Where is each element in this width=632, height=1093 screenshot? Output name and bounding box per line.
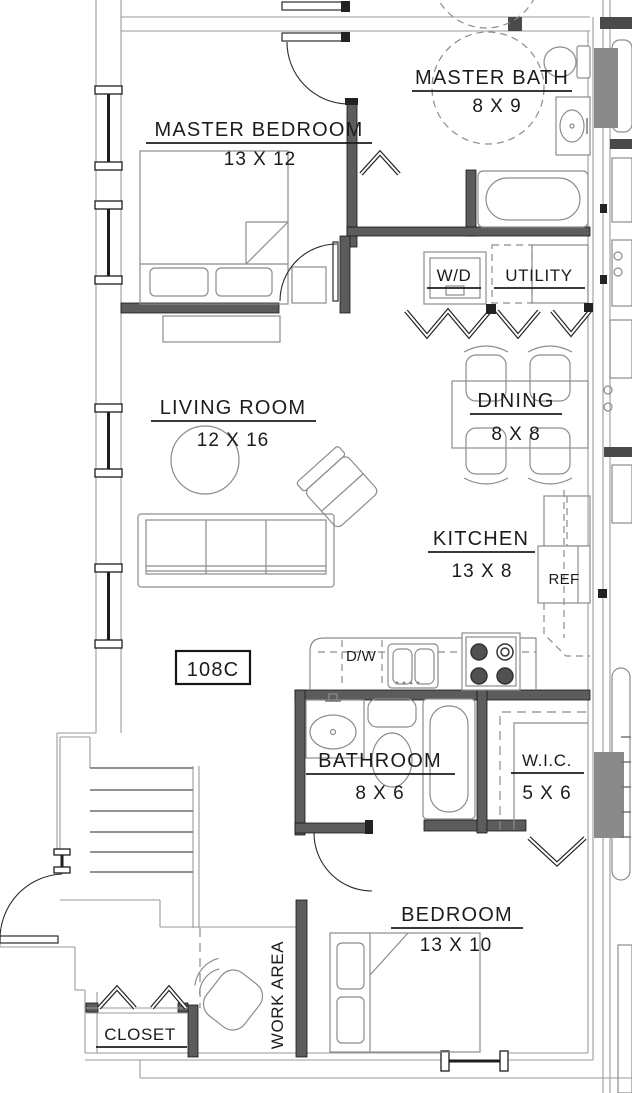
wall-block [594, 48, 618, 128]
turning-circle [432, 0, 540, 28]
doors [0, 1, 593, 1008]
door-leaf [333, 242, 338, 301]
room-label-closet: CLOSET [104, 1025, 176, 1044]
room-label-kitchen: KITCHEN [433, 528, 529, 550]
bifold-door-icon [552, 303, 593, 334]
window-icon [93, 404, 124, 477]
stove-icon [462, 633, 520, 690]
room-dims-dining: 8 X 8 [491, 424, 540, 445]
room-label-utility: UTILITY [505, 266, 573, 285]
room-dims-kitchen: 13 X 8 [452, 561, 513, 582]
room-label-dining: DINING [477, 390, 554, 412]
label-refrigerator: REF [549, 571, 580, 588]
room-label-master-bedroom: MASTER BEDROOM [154, 119, 363, 141]
living-room-furniture [138, 316, 379, 587]
bathtub-icon [478, 171, 588, 227]
master-bedroom-furniture [140, 151, 326, 304]
bifold-door-icon [152, 988, 186, 1008]
bifold-door-icon [99, 988, 135, 1008]
room-dims-master-bedroom: 13 X 12 [224, 149, 297, 170]
dining-furniture [452, 346, 588, 484]
nightstand-icon [292, 267, 326, 303]
room-dims-bedroom: 13 X 10 [420, 935, 493, 956]
floor-plan-drawing: MASTER BATH 8 X 9 MASTER BEDROOM 13 X 12… [0, 0, 632, 1093]
armchair-icon [296, 446, 379, 530]
window-icon-bottom [441, 1050, 509, 1072]
bifold-door-icon [361, 153, 399, 174]
wall-block [594, 752, 624, 838]
window-icon [93, 86, 124, 170]
console-icon [163, 316, 280, 342]
pocket-door-icon [282, 1, 350, 42]
unit-number: 108C [187, 659, 240, 681]
label-washer-dryer: W/D [437, 266, 472, 285]
label-dishwasher: D/W [346, 648, 377, 665]
sofa-icon [138, 514, 334, 587]
entry-door-leaf [0, 936, 58, 943]
room-dims-bathroom: 8 X 6 [355, 783, 404, 804]
wic-interior [500, 712, 588, 830]
room-label-master-bath: MASTER BATH [415, 67, 569, 89]
room-label-bedroom: BEDROOM [401, 904, 513, 926]
room-dims-living-room: 12 X 16 [197, 430, 270, 451]
entry-door-swing-arc [0, 874, 62, 940]
door-swing-arc [287, 42, 347, 104]
room-label-work-area: WORK AREA [268, 941, 287, 1049]
toilet-tank [368, 699, 416, 727]
door-swing-arc [314, 833, 372, 891]
room-label-bathroom: BATHROOM [318, 750, 442, 772]
bed-icon [140, 151, 288, 304]
room-dims-wic: 5 X 6 [522, 783, 571, 804]
room-label-living-room: LIVING ROOM [160, 397, 307, 419]
room-label-wic: W.I.C. [522, 751, 572, 770]
room-dims-master-bath: 8 X 9 [472, 96, 521, 117]
bifold-door-icon [406, 304, 496, 336]
bifold-door-icon [529, 838, 585, 864]
window-icon [93, 201, 124, 284]
vanity-sink-icon [556, 97, 590, 155]
bifold-door-icon [497, 311, 539, 336]
neighbor-unit [594, 0, 632, 1093]
floor-plan-page: MASTER BATH 8 X 9 MASTER BEDROOM 13 X 12… [0, 0, 632, 1093]
entry-door-post-icon [54, 849, 70, 873]
window-icon [93, 564, 124, 648]
stairs [90, 768, 193, 872]
